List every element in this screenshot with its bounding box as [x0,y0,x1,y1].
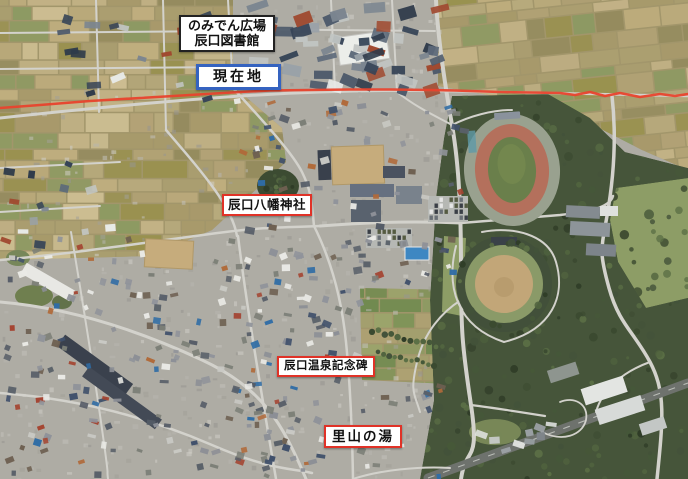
label-nomiden-plaza-library: のみでん広場 辰口図書館 [179,15,275,52]
institution-building [383,166,405,178]
label-satoyama-no-yu: 里山の湯 [324,425,402,448]
school-ground [331,145,384,185]
building [566,205,601,219]
label-text-line1: のみでん広場 [188,19,266,34]
label-text-line2: 辰口図書館 [188,34,266,49]
institution-building [396,186,422,204]
institution-building [350,184,394,197]
label-current-location: 現在地 [196,64,281,90]
building [570,221,611,237]
building [600,206,618,216]
school-ground [144,239,193,269]
parking-lot [428,196,468,222]
aerial-map: のみでん広場 辰口図書館 現在地 辰口八幡神社 辰口温泉記念碑 里山の湯 [0,0,688,479]
satellite-imagery [0,0,688,479]
institution-building [351,200,381,222]
label-onsen-monument: 辰口温泉記念碑 [277,356,375,377]
label-hachiman-shrine: 辰口八幡神社 [222,194,312,216]
baseball-park [456,236,552,332]
building [586,243,617,257]
school-building [317,150,331,180]
